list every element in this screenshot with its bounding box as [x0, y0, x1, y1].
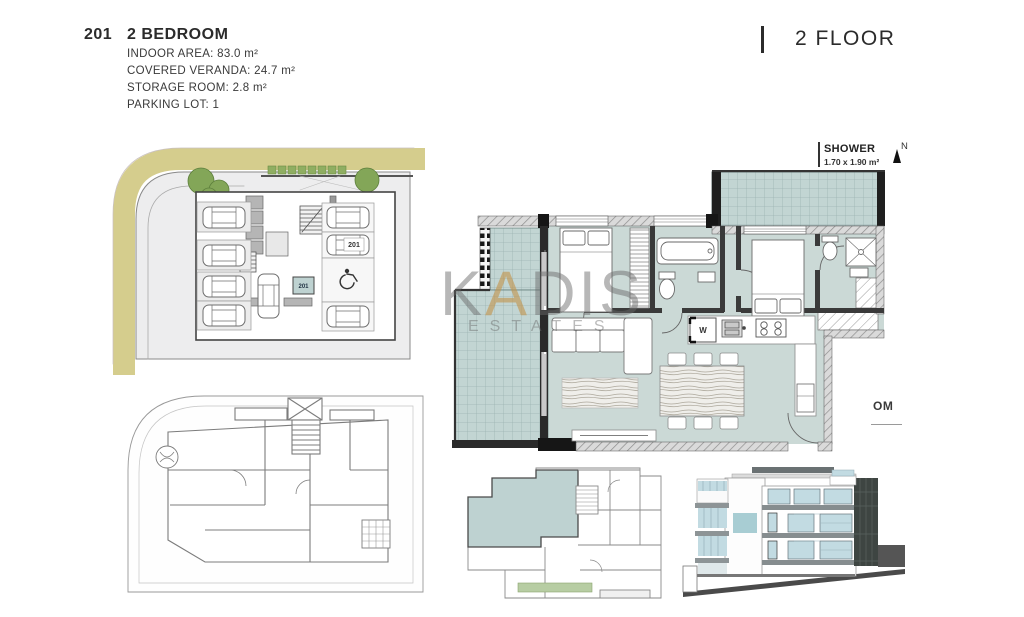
parking-right: 201	[322, 203, 374, 331]
bed-2	[752, 240, 804, 316]
shower-sink	[850, 268, 868, 277]
north-letter: N	[901, 141, 908, 152]
rug	[562, 378, 638, 408]
watermark-subtitle: ESTATES	[468, 318, 616, 336]
shower-label-bar	[818, 142, 820, 167]
fridge-icon	[797, 384, 814, 412]
key-plan	[468, 468, 661, 598]
roof-plan	[128, 396, 423, 592]
building-elevation	[683, 467, 905, 597]
parking-number-label: 201	[348, 242, 360, 249]
terrace	[712, 172, 884, 226]
car-icon	[258, 274, 279, 318]
north-arrow-icon	[893, 149, 901, 163]
bathtub	[657, 238, 718, 264]
highlighted-unit	[468, 470, 578, 547]
toilet-icon	[659, 272, 675, 299]
shower-tray	[846, 238, 876, 266]
unit-highlight-band	[733, 513, 757, 533]
bath-sink	[698, 272, 715, 282]
stove-icon	[756, 319, 786, 337]
toilet-icon	[822, 236, 838, 260]
facade-windows	[762, 489, 856, 565]
site-plan: 201 201	[113, 148, 414, 364]
parking-left	[197, 202, 251, 330]
kitchen-sink	[722, 320, 746, 337]
washer-label: W	[699, 326, 707, 335]
tv-console	[572, 430, 656, 441]
shower-dimensions: 1.70 x 1.90 m²	[824, 157, 879, 166]
car-icon	[203, 207, 245, 326]
shower-label: SHOWER	[824, 143, 875, 155]
floorplan-page: { "header": { "unit_number": "201", "uni…	[0, 0, 1024, 617]
tree-symbol	[156, 446, 178, 468]
balcony-stack	[695, 479, 729, 574]
partial-room-underline	[871, 424, 902, 425]
garden-strip	[518, 583, 592, 592]
storage-number-label: 201	[298, 284, 309, 290]
wardrobe-2	[856, 278, 878, 308]
dining-set	[660, 353, 744, 429]
partial-room-label: OM	[873, 399, 893, 413]
